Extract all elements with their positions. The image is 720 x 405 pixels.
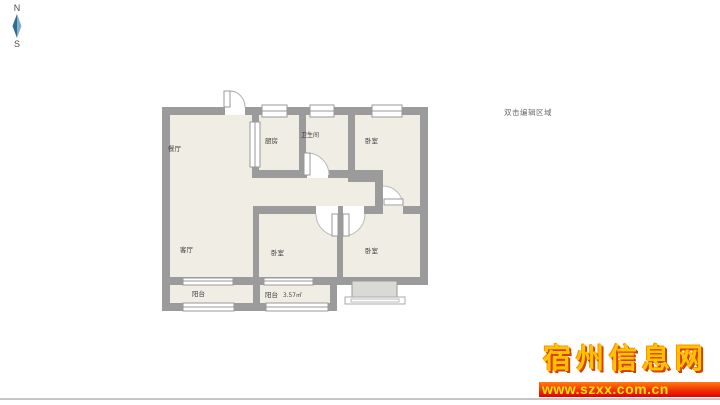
entry-door [224,91,245,115]
watermark-site-name: 宿州信息网 [543,342,708,376]
compass-south-label: S [6,39,28,49]
room-label-bedroom-right: 卧室 [365,246,379,255]
room-label-bedroom-top-right: 卧室 [365,136,379,145]
room-label-balcony-middle: 阳台 [265,290,278,299]
room-label-kitchen: 厨房 [265,136,278,145]
room-label-living: 客厅 [180,245,194,254]
room-label-dining: 餐厅 [168,144,182,153]
edit-hint-text: 双击编辑区域 [504,107,552,118]
watermark-url-banner: www.szxx.com.cn [539,382,720,397]
floor-plan[interactable]: 餐厅 厨房 卫生间 卧室 客厅 卧室 卧室 阳台 阳台 3.57㎡ [159,85,431,315]
sliding-door [250,122,260,167]
room-label-bedroom-mid: 卧室 [271,248,285,257]
room-label-bathroom: 卫生间 [301,131,319,139]
bay-window [345,281,405,304]
compass: N S [6,3,28,49]
bottom-divider [0,398,720,400]
page: N S [0,0,720,405]
compass-needle-icon [11,14,23,38]
room-label-balcony-left: 阳台 [192,289,205,298]
balcony-area-value: 3.57㎡ [283,291,302,299]
compass-north-label: N [6,3,28,13]
